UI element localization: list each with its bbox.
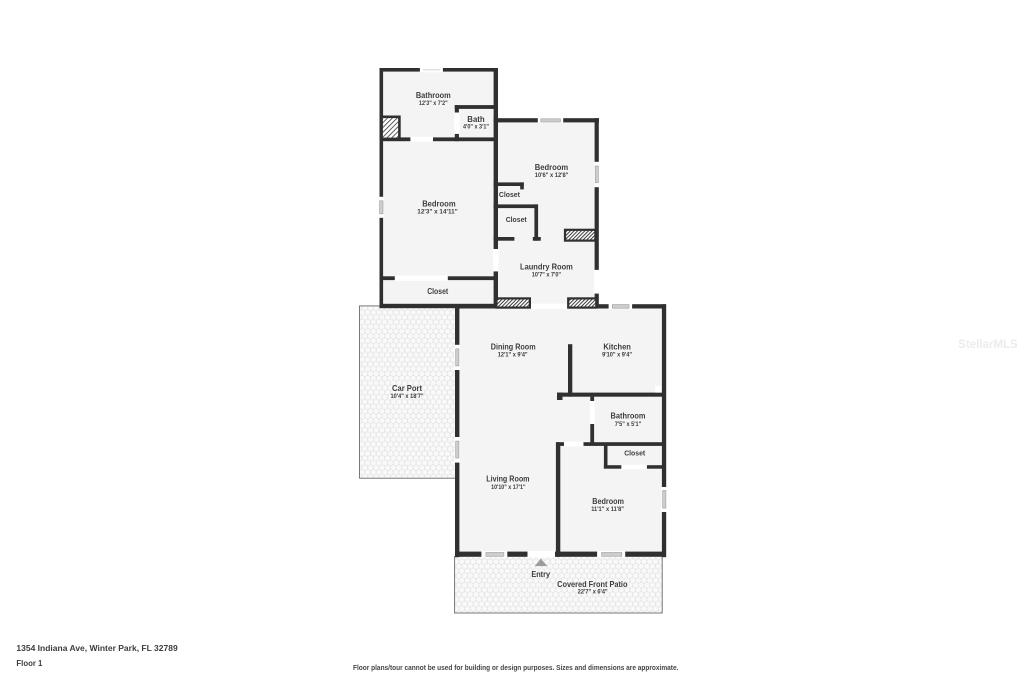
svg-text:Laundry Room: Laundry Room xyxy=(520,261,573,271)
svg-text:12'3" x 7'2": 12'3" x 7'2" xyxy=(419,100,448,107)
svg-text:7'5" x 5'1": 7'5" x 5'1" xyxy=(615,421,642,428)
svg-text:12'1" x 9'4": 12'1" x 9'4" xyxy=(498,352,528,359)
svg-text:11'1" x 11'8": 11'1" x 11'8" xyxy=(591,506,624,513)
svg-text:9'10" x 9'4": 9'10" x 9'4" xyxy=(602,352,632,359)
svg-text:Covered Front Patio: Covered Front Patio xyxy=(557,579,627,589)
svg-text:22'7" x 6'4": 22'7" x 6'4" xyxy=(578,589,608,596)
svg-text:Entry: Entry xyxy=(531,569,550,579)
svg-text:4'0" x 3'1": 4'0" x 3'1" xyxy=(463,124,489,131)
svg-text:Floor plans/tour cannot be use: Floor plans/tour cannot be used for buil… xyxy=(353,665,678,672)
svg-text:Bathroom: Bathroom xyxy=(611,411,646,421)
svg-text:10'7" x 7'0": 10'7" x 7'0" xyxy=(532,271,561,278)
svg-text:StellarMLS: StellarMLS xyxy=(958,339,1018,351)
svg-text:Bath: Bath xyxy=(467,114,484,124)
svg-text:12'3" x 14'11": 12'3" x 14'11" xyxy=(417,209,457,216)
svg-text:10'6" x 12'8": 10'6" x 12'8" xyxy=(535,172,569,179)
svg-text:Bedroom: Bedroom xyxy=(535,162,568,172)
svg-text:Living Room: Living Room xyxy=(486,473,529,483)
svg-text:Kitchen: Kitchen xyxy=(603,342,631,352)
svg-text:Bathroom: Bathroom xyxy=(416,90,451,100)
svg-text:Car Port: Car Port xyxy=(392,383,422,393)
svg-text:Bedroom: Bedroom xyxy=(422,199,455,209)
svg-text:10'10" x 17'1": 10'10" x 17'1" xyxy=(491,484,525,491)
svg-text:Floor 1: Floor 1 xyxy=(16,658,42,668)
svg-text:10'4" x 18'7": 10'4" x 18'7" xyxy=(391,393,424,400)
svg-text:Bedroom: Bedroom xyxy=(592,496,624,506)
svg-text:Closet: Closet xyxy=(506,215,527,224)
svg-text:Dining Room: Dining Room xyxy=(491,342,536,352)
svg-text:Closet: Closet xyxy=(499,190,520,199)
svg-text:Closet: Closet xyxy=(624,449,645,458)
svg-text:Closet: Closet xyxy=(427,286,448,296)
svg-text:1354 Indiana Ave, Winter Park,: 1354 Indiana Ave, Winter Park, FL 32789 xyxy=(16,643,178,653)
